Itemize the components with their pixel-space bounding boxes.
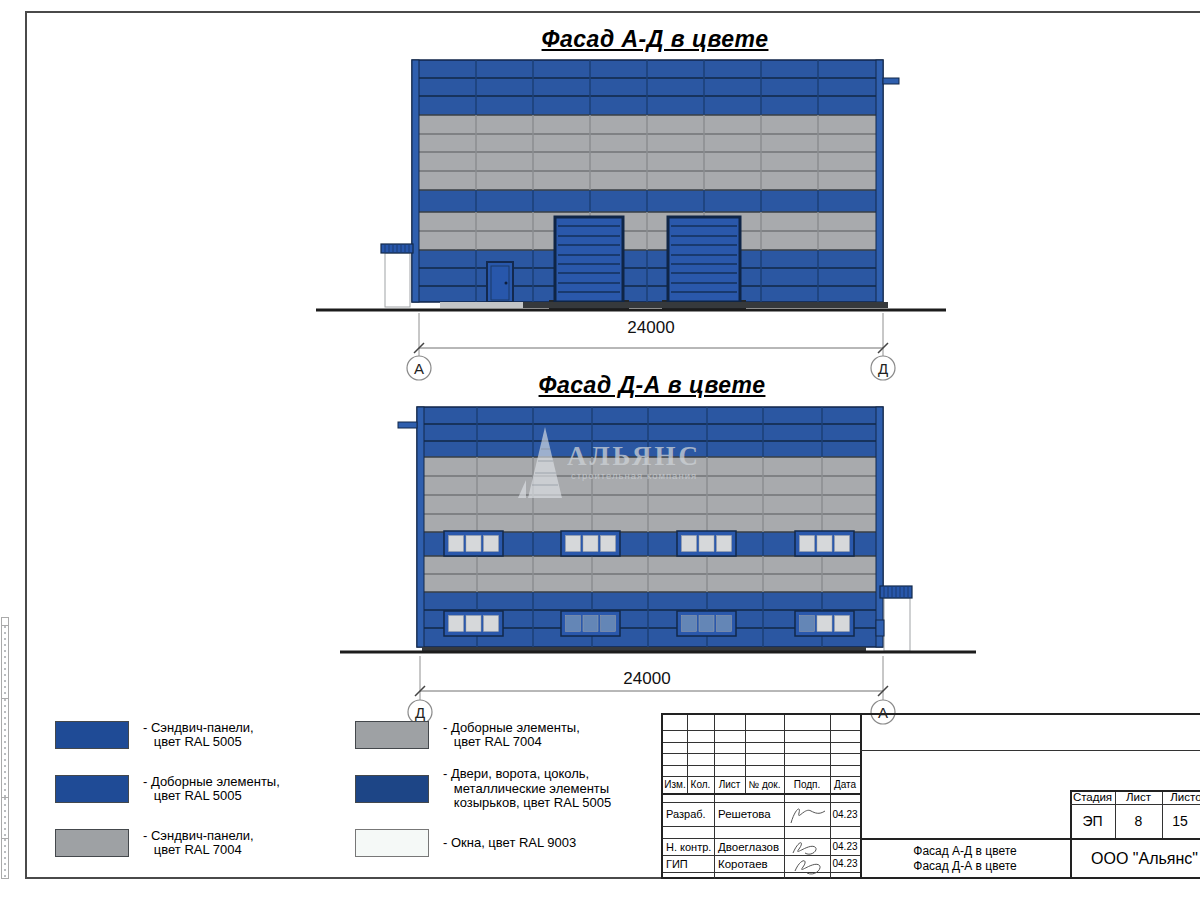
corner-trim-left xyxy=(412,60,419,302)
tb-doc-name: Фасад А-Д в цвете Фасад Д-А в цвете xyxy=(860,838,1070,879)
axis-letter-left: А xyxy=(414,360,424,377)
frame-left xyxy=(25,11,27,879)
side-stamp-cell xyxy=(2,798,8,839)
side-stamp xyxy=(1,617,9,879)
tb-sheet-value: 8 xyxy=(1115,804,1162,838)
axis-letter-right: Д xyxy=(878,360,888,377)
window xyxy=(444,611,503,636)
legend-label: - Доборные элементы, цвет RAL 7004 xyxy=(443,721,580,750)
legend-label: - Двери, ворота, цоколь, металлические э… xyxy=(443,767,611,811)
tb-role: Разраб. xyxy=(663,802,717,826)
tb-role: Н. контр. xyxy=(663,838,717,855)
gate-right xyxy=(662,217,746,309)
gate-left xyxy=(549,217,629,309)
side-stamp-cell xyxy=(2,618,8,626)
color-swatch xyxy=(55,829,129,857)
side-stamp-cell xyxy=(2,626,8,699)
plinth-dark xyxy=(523,302,888,308)
facade-2-drawing: АЛЬЯНС строительная компания 24000 Д А xyxy=(300,395,980,725)
tb-sheets-value: 15 xyxy=(1162,804,1198,838)
legend-item: - Сэндвич-панели, цвет RAL 5005 xyxy=(55,721,254,749)
tb-stage-value: ЭП xyxy=(1070,804,1115,838)
legend-label: - Сэндвич-панели, цвет RAL 7004 xyxy=(143,829,254,858)
side-stamp-cell xyxy=(2,699,8,798)
roof-bracket xyxy=(398,422,417,428)
frame-top xyxy=(25,11,1200,13)
side-door xyxy=(876,620,884,636)
legend-label: - Окна, цвет RAL 9003 xyxy=(443,836,576,851)
facade-1-building xyxy=(412,60,899,302)
plinth-light xyxy=(440,302,523,308)
corner-trim-left xyxy=(417,407,424,647)
drawing-sheet: Фасад А-Д в цвете xyxy=(0,0,1200,900)
dimension-value: 24000 xyxy=(623,669,670,688)
tb-stage-label: Стадия xyxy=(1070,790,1115,804)
title-block: Изм. Кол. Лист № док. Подп. Дата Разраб.… xyxy=(661,713,1200,879)
color-swatch xyxy=(355,775,429,803)
window xyxy=(444,531,503,556)
signature xyxy=(785,803,829,827)
tb-date: 04.23 xyxy=(830,855,860,872)
legend-item: - Доборные элементы, цвет RAL 7004 xyxy=(355,721,580,749)
legend-item: - Двери, ворота, цоколь, металлические э… xyxy=(355,775,611,803)
tb-organization: ООО "Альянс" xyxy=(1070,838,1200,879)
tb-name: Решетова xyxy=(714,802,788,826)
color-swatch xyxy=(355,829,429,857)
tb-sheets-label: Листов xyxy=(1162,790,1200,804)
roof-bracket xyxy=(883,78,899,84)
tb-col-izm: Изм. xyxy=(663,776,687,793)
watermark-name: АЛЬЯНС xyxy=(567,441,701,471)
tb-date: 04.23 xyxy=(830,838,860,855)
window xyxy=(561,531,620,556)
tb-sheet-label: Лист xyxy=(1115,790,1162,804)
color-swatch xyxy=(55,721,129,749)
facade-1-drawing: 24000 А Д xyxy=(300,55,960,385)
legend-item: - Доборные элементы, цвет RAL 5005 xyxy=(55,775,280,803)
dimension-facade-1: 24000 А Д xyxy=(407,313,895,380)
axis-letter-left: Д xyxy=(415,704,425,721)
tb-col-list: Лист xyxy=(714,776,745,793)
tb-col-kol: Кол. xyxy=(687,776,714,793)
dimension-value: 24000 xyxy=(627,318,674,337)
window xyxy=(677,611,736,636)
color-swatch xyxy=(55,775,129,803)
color-swatch xyxy=(355,721,429,749)
window xyxy=(677,531,736,556)
tb-date: 04.23 xyxy=(830,802,860,826)
legend-item: - Окна, цвет RAL 9003 xyxy=(355,829,576,857)
entrance-canopy xyxy=(381,244,413,307)
window xyxy=(795,611,854,636)
window xyxy=(795,531,854,556)
tb-col-data: Дата xyxy=(830,776,860,793)
side-stamp-cell xyxy=(2,839,8,880)
legend-label: - Доборные элементы, цвет RAL 5005 xyxy=(143,775,280,804)
tb-col-ndok: № док. xyxy=(745,776,784,793)
watermark-subtitle: строительная компания xyxy=(571,470,697,481)
corner-trim-right xyxy=(876,60,883,302)
corner-trim-right xyxy=(876,407,883,647)
tb-name: Коротаев xyxy=(714,855,788,872)
signature xyxy=(785,837,829,879)
tb-role: ГИП xyxy=(663,855,717,872)
window xyxy=(561,611,620,636)
facade-1-title: Фасад А-Д в цвете xyxy=(450,26,860,53)
entrance-door xyxy=(487,262,513,302)
tb-name: Двоеглазов xyxy=(714,838,788,855)
legend-label: - Сэндвич-панели, цвет RAL 5005 xyxy=(143,721,254,750)
legend-item: - Сэндвич-панели, цвет RAL 7004 xyxy=(55,829,254,857)
tb-col-podp: Подп. xyxy=(784,776,830,793)
